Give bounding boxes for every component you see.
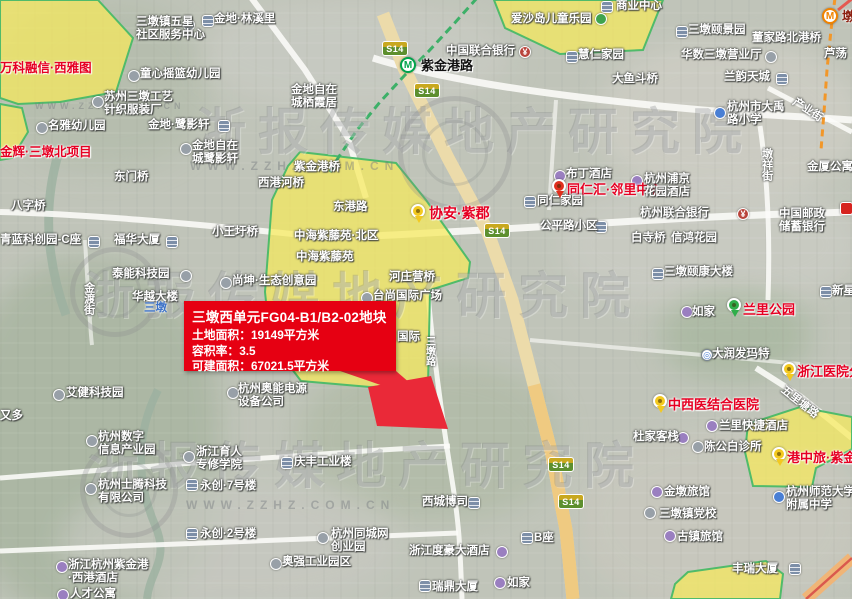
building-icon <box>468 497 480 509</box>
map-label: 青蓝科创园-C座 <box>0 234 81 247</box>
parcel-info-box: 三墩西单元FG04-B1/B2-02地块 土地面积：19149平方米 容积率：3… <box>184 301 396 371</box>
metro-station-icon[interactable]: M <box>400 57 416 73</box>
map-label: 三墩镇党校 <box>659 508 717 521</box>
dot-icon <box>92 96 104 108</box>
map-label: 爱沙岛儿童乐园 <box>511 13 592 26</box>
map-label: 兰韵天城 <box>724 71 770 84</box>
road-badge-s14: S14 <box>548 457 574 472</box>
map-label: 商业中心 <box>616 0 662 13</box>
building-icon <box>652 268 664 280</box>
map-label: 杭州士腾科技有限公司 <box>98 479 167 505</box>
map-label: 金辉·三墩北项目 <box>0 145 92 159</box>
map-label: 泰能科技园 <box>112 268 170 281</box>
map-label: 中国邮政储蓄银行 <box>779 208 825 234</box>
road-badge-s14: S14 <box>558 494 584 509</box>
map-label: 三墩路 <box>423 336 435 366</box>
map-label: 苏州三墩工艺针织服装厂 <box>104 91 173 117</box>
map-label: 古镇旅馆 <box>677 531 723 544</box>
map-label: 丰瑞大厦 <box>732 563 778 576</box>
dot-icon <box>128 70 140 82</box>
dot-icon <box>86 435 98 447</box>
map-label: 又多 <box>0 410 23 423</box>
map-label: 陈公白诊所 <box>704 441 762 454</box>
hotel-icon <box>651 486 663 498</box>
map-label: 奥强工业园区 <box>282 556 351 569</box>
map-label: 浙江杭州紫金港·西港酒店 <box>68 559 149 585</box>
parcel-title: 三墩西单元FG04-B1/B2-02地块 <box>192 306 388 326</box>
hotel-icon <box>56 561 68 573</box>
map-label: 福华大厦 <box>114 234 160 247</box>
building-icon <box>281 457 293 469</box>
map-label: 浙江育人专修学院 <box>196 446 242 472</box>
building-icon <box>521 532 533 544</box>
map-label: 协安·紫郡 <box>429 205 490 221</box>
map-label: 紫金港桥 <box>294 161 340 174</box>
map-label: 杭州师范大学附属中学 <box>786 486 852 512</box>
map-label: 产业街 <box>790 96 825 125</box>
parcel-land-area: 土地面积：19149平方米 <box>192 328 388 344</box>
map-label: 浙江医院分 <box>797 365 852 380</box>
bank-icon: ¥ <box>519 46 531 58</box>
building-icon <box>186 479 198 491</box>
parcel-plot-ratio: 容积率：3.5 <box>192 344 388 360</box>
map-label: 信鸿花园 <box>671 232 717 245</box>
map-label: 芦荡 <box>824 48 847 61</box>
dot-icon <box>765 51 777 63</box>
map-label: 三墩 <box>144 302 167 315</box>
pin-yellow-icon[interactable] <box>653 394 667 408</box>
pin-red-icon[interactable] <box>552 179 566 193</box>
parcel-buildable-area: 可建面积：67021.5平方米 <box>192 359 388 375</box>
hotel-icon <box>706 420 718 432</box>
map-label: 杭州浦京花园酒店 <box>644 173 690 199</box>
map-label: 金墩旅馆 <box>664 486 710 499</box>
map-label: 公平路小区 <box>540 220 598 233</box>
map-label: 华数三墩营业厅 <box>681 49 762 62</box>
map-label: 金地自在城鹭影轩 <box>192 140 238 166</box>
map-label: 杭州数字信息产业园 <box>98 431 156 457</box>
building-icon <box>820 286 832 298</box>
map-label: 小王圩桥 <box>212 226 258 239</box>
map-label: 三墩颐康大楼 <box>664 266 733 279</box>
map-label: 中西医结合医院 <box>668 398 759 413</box>
dot-icon <box>36 122 48 134</box>
dot-icon <box>180 143 192 155</box>
bank-icon: ¥ <box>737 208 749 220</box>
map-label: 大鱼斗桥 <box>612 73 658 86</box>
map-label: 河庄营桥 <box>389 271 435 284</box>
map-label: 浙江度豪大酒店 <box>409 545 490 558</box>
map-label: 庆丰工业楼 <box>294 456 352 469</box>
building-icon <box>676 26 688 38</box>
map-label: 中海紫藤苑·北区 <box>294 230 378 243</box>
hotel-icon <box>664 530 676 542</box>
pin-yellow-icon[interactable] <box>782 362 796 376</box>
building-icon <box>166 236 178 248</box>
dot-icon <box>317 532 329 544</box>
map-label: 国际 <box>397 331 420 344</box>
building-icon <box>601 1 613 13</box>
map-label: 董家路北港桥 <box>752 32 821 45</box>
map-label: 童心摇篮幼儿园 <box>140 68 221 81</box>
map-label: 如家 <box>692 306 715 319</box>
map-label: 艾健科技园 <box>66 387 124 400</box>
map-label: 金地·鹭影轩 <box>148 119 209 132</box>
dot-icon <box>270 558 282 570</box>
map-label: 三墩镇五星社区服务中心 <box>136 16 205 42</box>
building-icon <box>524 196 536 208</box>
map-label: 东港路 <box>333 201 368 214</box>
map-label: 白寺桥 <box>631 232 666 245</box>
map-label: 杭州同城网创业园 <box>331 528 389 554</box>
map-label: B座 <box>534 532 554 545</box>
map-label: 东门桥 <box>114 171 149 184</box>
map-label: 中海紫藤苑 <box>296 251 354 264</box>
map-label: 人才公寓 <box>70 588 116 599</box>
map-label: 紫金港路 <box>421 59 473 74</box>
map-label: 永创·2号楼 <box>200 528 256 541</box>
red-badge-icon <box>840 202 852 215</box>
school-icon <box>714 107 726 119</box>
hotel-icon <box>494 577 506 589</box>
map-label: 新星 <box>832 285 852 298</box>
building-icon <box>186 528 198 540</box>
metro-station-icon[interactable]: M <box>822 8 838 24</box>
map-label: 港中旅·紫金 <box>787 451 852 466</box>
dot-icon <box>692 441 704 453</box>
map-label: 金地·林溪里 <box>214 13 275 26</box>
map-label: 杜家客栈 <box>633 431 679 444</box>
map-label: 名雅幼儿园 <box>48 120 106 133</box>
pin-yellow-icon[interactable] <box>411 204 425 218</box>
map-label: 墩 <box>842 10 852 25</box>
map-label: 墩祥街 <box>760 148 773 181</box>
map-label: 兰里公园 <box>743 303 795 318</box>
map-label: 西港河桥 <box>258 177 304 190</box>
map-label: 大润发玛特 <box>712 348 770 361</box>
park-icon <box>595 13 607 25</box>
map-label: 尚坤·生态创意园 <box>232 275 316 288</box>
hotel-icon <box>57 589 69 599</box>
map-label: 杭州奥能电源设备公司 <box>238 383 307 409</box>
dot-icon <box>220 277 232 289</box>
map-label: 五里塘路 <box>778 384 820 421</box>
dot-icon <box>644 507 656 519</box>
poi-label-layer: 商业中心爱沙岛儿童乐园金地·林溪里三墩镇五星社区服务中心万科融信·西雅图童心摇篮… <box>0 0 852 599</box>
map-label: 兰里快捷酒店 <box>719 420 788 433</box>
map-canvas[interactable]: 浙报传媒地产研究院 浙报传媒地产研究院 浙报传媒地产研究院 WWW.ZZHZ.C… <box>0 0 852 599</box>
building-icon <box>789 563 801 575</box>
road-badge-s14: S14 <box>382 41 408 56</box>
map-label: 慧仁家园 <box>578 49 624 62</box>
road-badge-s14: S14 <box>414 83 440 98</box>
map-label: 西城博司 <box>422 496 468 509</box>
map-label: 万科融信·西雅图 <box>0 61 92 75</box>
dot-icon <box>53 389 65 401</box>
map-label: 布丁酒店 <box>566 168 612 181</box>
map-label: 金厦公寓 <box>807 161 852 174</box>
hotel-icon <box>496 546 508 558</box>
map-label: 中国联合银行 <box>446 45 515 58</box>
building-icon <box>566 51 578 63</box>
map-label: 永创·7号楼 <box>200 480 256 493</box>
pin-yellow-icon[interactable] <box>772 447 786 461</box>
road-badge-s14: S14 <box>484 223 510 238</box>
building-icon <box>88 236 100 248</box>
school-icon <box>773 491 785 503</box>
map-label: 杭州市大禹路小学 <box>727 101 785 127</box>
pin-green-icon[interactable] <box>727 298 741 312</box>
dot-icon <box>183 451 195 463</box>
map-label: 三墩颐景园 <box>688 24 746 37</box>
building-icon <box>776 73 788 85</box>
map-label: 如家 <box>507 577 530 590</box>
map-label: 八字桥 <box>11 200 46 213</box>
map-label: 金渡街 <box>82 282 95 315</box>
map-label: 金地自在城栖霞居 <box>291 84 337 110</box>
map-label: 瑞鼎大厦 <box>432 581 478 594</box>
dot-icon <box>180 270 192 282</box>
map-label: 杭州联合银行 <box>640 207 709 220</box>
building-icon <box>419 580 431 592</box>
building-icon <box>218 120 230 132</box>
dot-icon <box>85 483 97 495</box>
